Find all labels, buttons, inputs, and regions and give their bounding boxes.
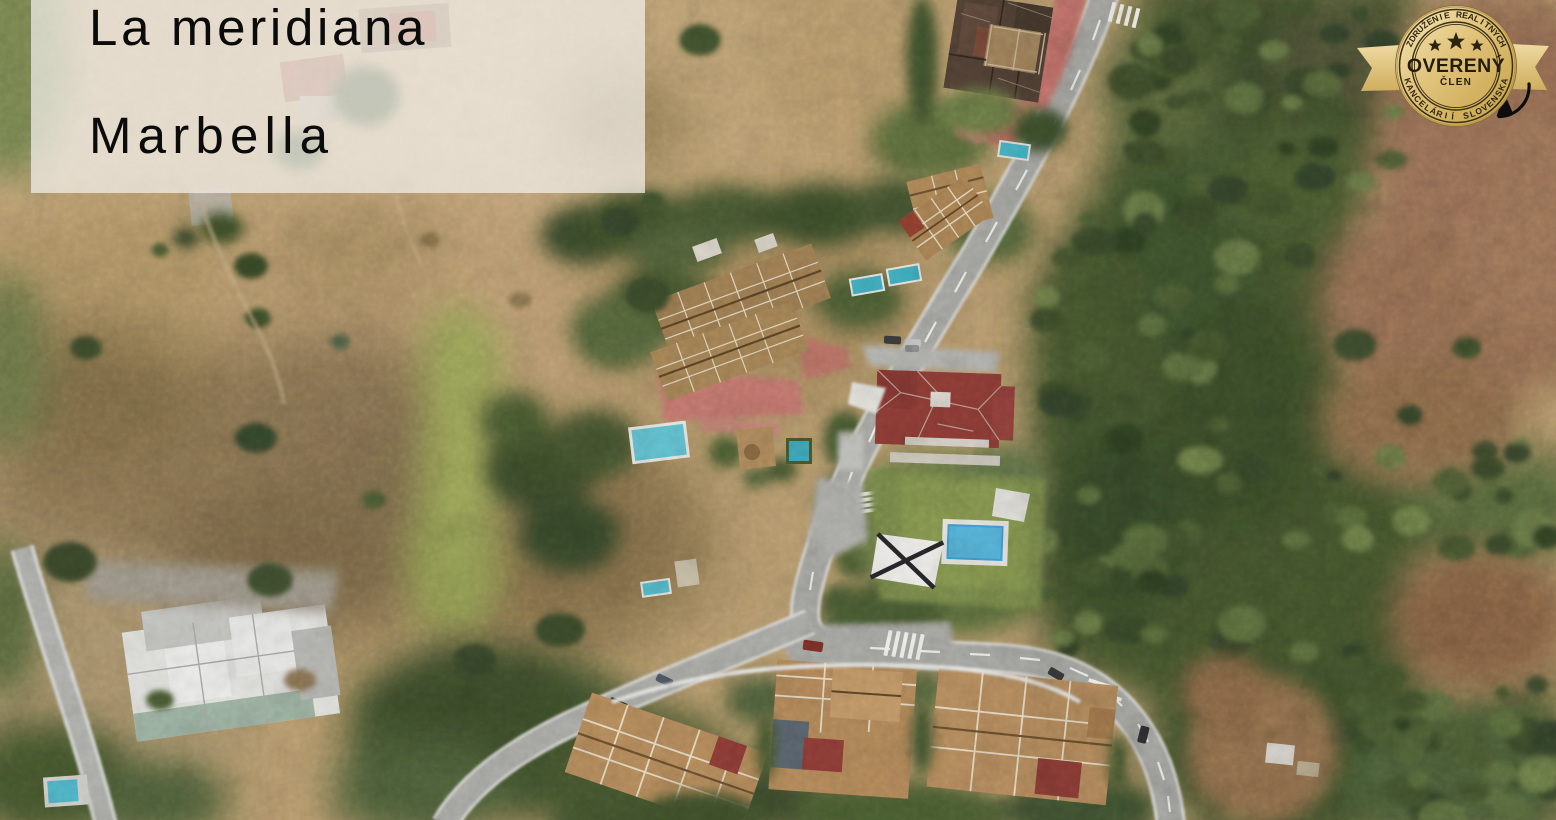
svg-text:OVERENÝ: OVERENÝ (1407, 53, 1505, 77)
svg-text:La meridiana: La meridiana (89, 0, 428, 56)
svg-text:ČLEN: ČLEN (1440, 75, 1472, 88)
svg-text:Marbella: Marbella (89, 107, 334, 164)
